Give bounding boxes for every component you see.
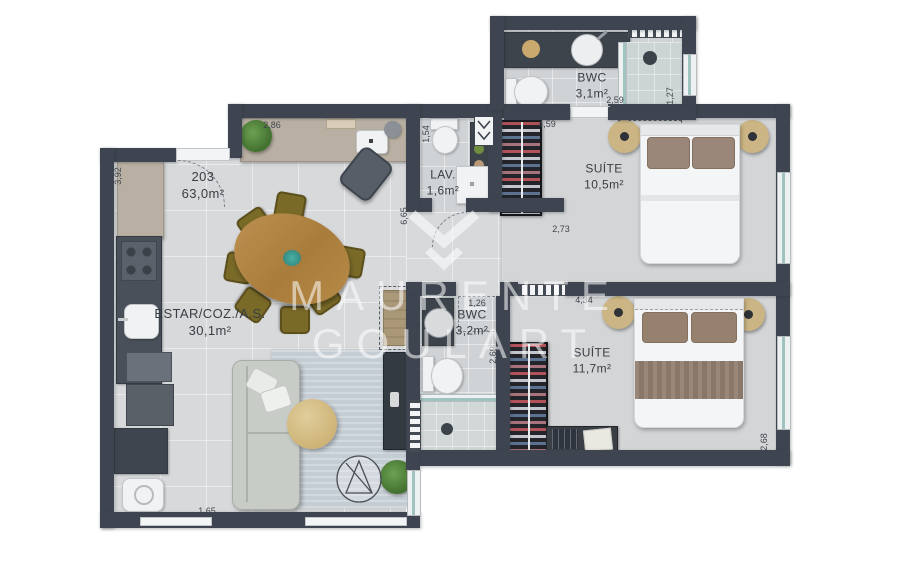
bwc2-area: 3,2m² bbox=[456, 323, 489, 339]
outside-corner-patch bbox=[98, 100, 228, 148]
bwc2-basin bbox=[424, 308, 454, 338]
dim-1-65: 1,65 bbox=[198, 506, 216, 516]
bwc1-label: BWC 3,1m² bbox=[576, 70, 609, 101]
bwc2-toilet-bowl bbox=[431, 358, 463, 394]
bwc2-shower-glass bbox=[420, 394, 498, 402]
dim-3-92: 3,92 bbox=[113, 167, 123, 185]
wall-lav-bottom-pier bbox=[420, 198, 432, 212]
dim-2-59: 2,59 bbox=[606, 95, 624, 105]
coffee-table bbox=[287, 399, 337, 449]
suite1-pillow bbox=[692, 137, 735, 169]
lav-basin-drain bbox=[470, 182, 474, 186]
washer-door bbox=[134, 485, 154, 505]
wall-mid-pier bbox=[500, 282, 518, 296]
bwc1-accessory bbox=[522, 40, 540, 58]
table-centerpiece bbox=[283, 250, 301, 266]
lav-toilet-bowl bbox=[432, 126, 458, 154]
dim-4-34: 4,34 bbox=[575, 295, 593, 305]
bench-clothes-light bbox=[583, 428, 613, 453]
dim-1-27: 1,27 bbox=[665, 87, 675, 105]
suite1-name: SUÍTE bbox=[584, 161, 624, 177]
wall-left bbox=[100, 148, 114, 528]
kettle bbox=[384, 121, 401, 138]
suite2-label: SUÍTE 11,7m² bbox=[573, 345, 612, 376]
bwc2-shower-head bbox=[441, 423, 453, 435]
cooktop bbox=[121, 241, 157, 281]
suite1-nightstand-left bbox=[608, 120, 641, 153]
wall-mid-a bbox=[406, 282, 456, 296]
living-name: ESTAR/COZ./A.S. bbox=[154, 306, 265, 323]
laundry-appliance bbox=[126, 384, 174, 426]
tv-remote bbox=[390, 392, 399, 407]
bottom-sill-2 bbox=[305, 517, 407, 526]
suite1-headboard bbox=[641, 125, 739, 136]
wall-bwc1-bottom-a bbox=[504, 107, 570, 120]
wall-bottom-suites bbox=[420, 450, 790, 466]
wall-suite2-top bbox=[564, 282, 790, 296]
suite1-duvet-fold bbox=[641, 195, 739, 201]
suite1-pillow bbox=[647, 137, 690, 169]
dining-chair bbox=[280, 306, 310, 334]
bwc2-shower-floor bbox=[420, 398, 496, 452]
bench-clothes-dark bbox=[552, 429, 578, 449]
wall-bwc2-right bbox=[496, 296, 510, 454]
laundry-cabinet bbox=[126, 352, 172, 382]
suite2-wardrobe bbox=[508, 342, 548, 456]
suite2-door-sill bbox=[518, 284, 566, 296]
suite1-label: SUÍTE 10,5m² bbox=[584, 161, 624, 192]
suite2-pillow bbox=[642, 312, 688, 343]
counter-tray bbox=[326, 119, 356, 129]
unit-number: 203 bbox=[182, 169, 225, 186]
bwc1-name: BWC bbox=[576, 70, 609, 86]
dim-1-26: 1,26 bbox=[468, 298, 486, 308]
wall-bwc1-left bbox=[490, 16, 504, 110]
suite2-name: SUÍTE bbox=[573, 345, 612, 361]
bwc2-label: BWC 3,2m² bbox=[456, 307, 489, 338]
kitchen-sink-faucet bbox=[118, 318, 128, 321]
lav-name: LAV. bbox=[427, 167, 460, 183]
dim-2-86: 2,86 bbox=[263, 120, 281, 130]
bwc1-area: 3,1m² bbox=[576, 86, 609, 102]
living-corner-window bbox=[407, 470, 421, 516]
bwc2-shower-door bbox=[409, 400, 421, 452]
living-area: 30,1m² bbox=[154, 323, 265, 340]
suite2-bed-runner bbox=[635, 361, 743, 399]
dim-4-59: 4,59 bbox=[538, 119, 556, 129]
suite1-nightstand-right bbox=[736, 120, 769, 153]
suite1-window bbox=[777, 172, 791, 264]
wall-bwc1-top bbox=[490, 16, 696, 30]
bottom-sill-1 bbox=[140, 517, 212, 526]
wall-step-left bbox=[228, 104, 242, 158]
wire-decor bbox=[336, 455, 382, 503]
bwc1-door-sill bbox=[570, 106, 610, 118]
bwc2-name: BWC bbox=[456, 307, 489, 323]
wall-hall-top bbox=[466, 198, 564, 212]
suite2-area: 11,7m² bbox=[573, 361, 612, 377]
laundry-shelf bbox=[114, 428, 168, 474]
suite2-pillow bbox=[691, 312, 737, 343]
suite2-headboard bbox=[635, 299, 743, 310]
dim-2-68: 2,68 bbox=[759, 433, 769, 451]
entry-door-sill bbox=[176, 148, 230, 161]
suite2-window bbox=[777, 336, 791, 430]
suite2-nightstand-left bbox=[602, 296, 635, 329]
wall-lav-left bbox=[406, 104, 420, 212]
dim-2-73: 2,73 bbox=[552, 224, 570, 234]
lav-label: LAV. 1,6m² bbox=[427, 167, 460, 198]
bwc1-shower-head bbox=[643, 51, 657, 65]
dim-2-69: 2,69 bbox=[488, 346, 498, 364]
living-label: ESTAR/COZ./A.S. 30,1m² bbox=[154, 306, 265, 340]
unit-label: 203 63,0m² bbox=[182, 169, 225, 203]
suite1-bed bbox=[640, 124, 740, 264]
suite2-bed bbox=[634, 298, 744, 428]
unit-area: 63,0m² bbox=[182, 186, 225, 203]
floor-plan-render: 203 63,0m² ESTAR/COZ./A.S. 30,1m² LAV. 1… bbox=[0, 0, 900, 572]
dim-1-54: 1,54 bbox=[421, 125, 431, 143]
counter-sink-drain bbox=[369, 139, 373, 143]
shaft-vent-symbol bbox=[474, 116, 494, 146]
suite1-area: 10,5m² bbox=[584, 177, 624, 193]
wall-bwc1-bottom-b bbox=[608, 107, 696, 120]
kitchen-upper-counter bbox=[117, 160, 164, 238]
bwc1-window bbox=[683, 54, 697, 96]
lav-area: 1,6m² bbox=[427, 183, 460, 199]
dim-6-65: 6,65 bbox=[399, 207, 409, 225]
